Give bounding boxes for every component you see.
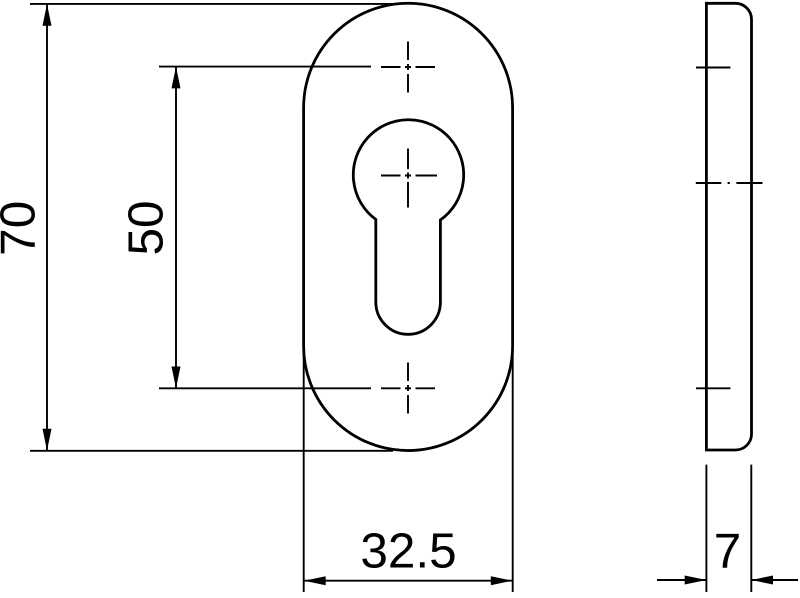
svg-text:32.5: 32.5 — [360, 524, 456, 579]
svg-text:70: 70 — [0, 201, 46, 256]
svg-text:7: 7 — [714, 524, 742, 579]
svg-text:50: 50 — [119, 200, 174, 255]
